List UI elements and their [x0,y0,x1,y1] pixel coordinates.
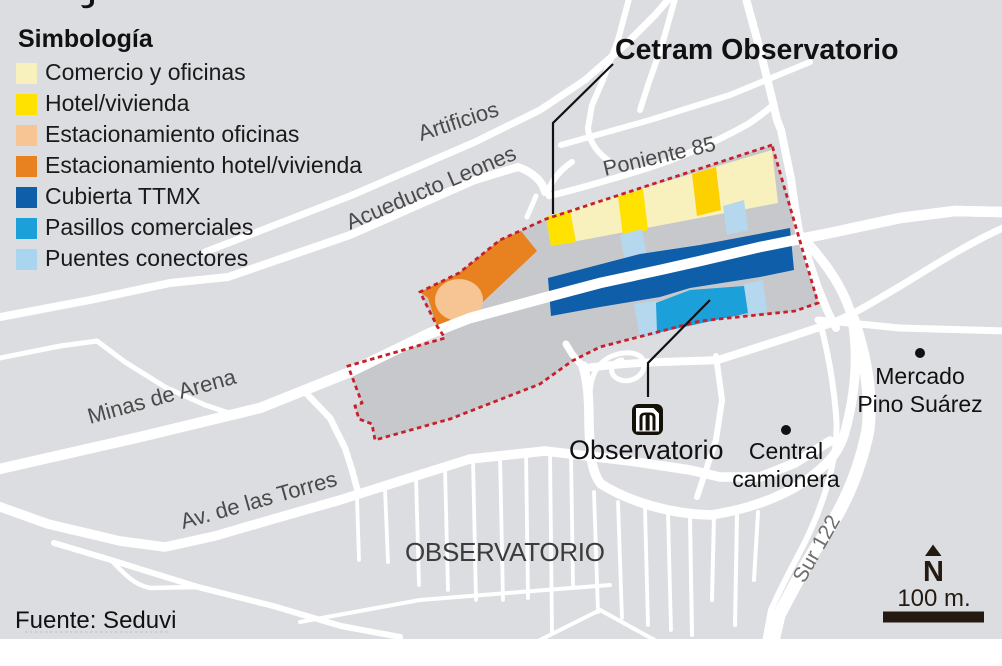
svg-text:Fuente: Seduvi: Fuente: Seduvi [15,607,176,634]
svg-text:Simbología: Simbología [18,25,154,53]
svg-text:Puentes conectores: Puentes conectores [45,245,248,271]
svg-text:camionera: camionera [732,466,840,492]
svg-text:Cubierta TTMX: Cubierta TTMX [45,183,201,209]
svg-text:N: N [923,556,944,588]
svg-text:Hotel/vivienda: Hotel/vivienda [45,90,190,116]
svg-text:Mercado: Mercado [875,363,964,389]
svg-text:Estacionamiento hotel/vivienda: Estacionamiento hotel/vivienda [45,152,362,178]
svg-text:OBSERVATORIO: OBSERVATORIO [405,537,605,567]
svg-text:Pino Suárez: Pino Suárez [857,391,982,417]
svg-text:100 m.: 100 m. [897,585,970,612]
svg-text:Comercio y oficinas: Comercio y oficinas [45,59,246,85]
svg-text:Cetram Observatorio: Cetram Observatorio [615,34,899,66]
svg-text:Estacionamiento oficinas: Estacionamiento oficinas [45,121,299,147]
svg-text:Observatorio: Observatorio [569,435,724,465]
svg-text:Pasillos comerciales: Pasillos comerciales [45,214,253,240]
svg-text:Central: Central [749,438,823,464]
